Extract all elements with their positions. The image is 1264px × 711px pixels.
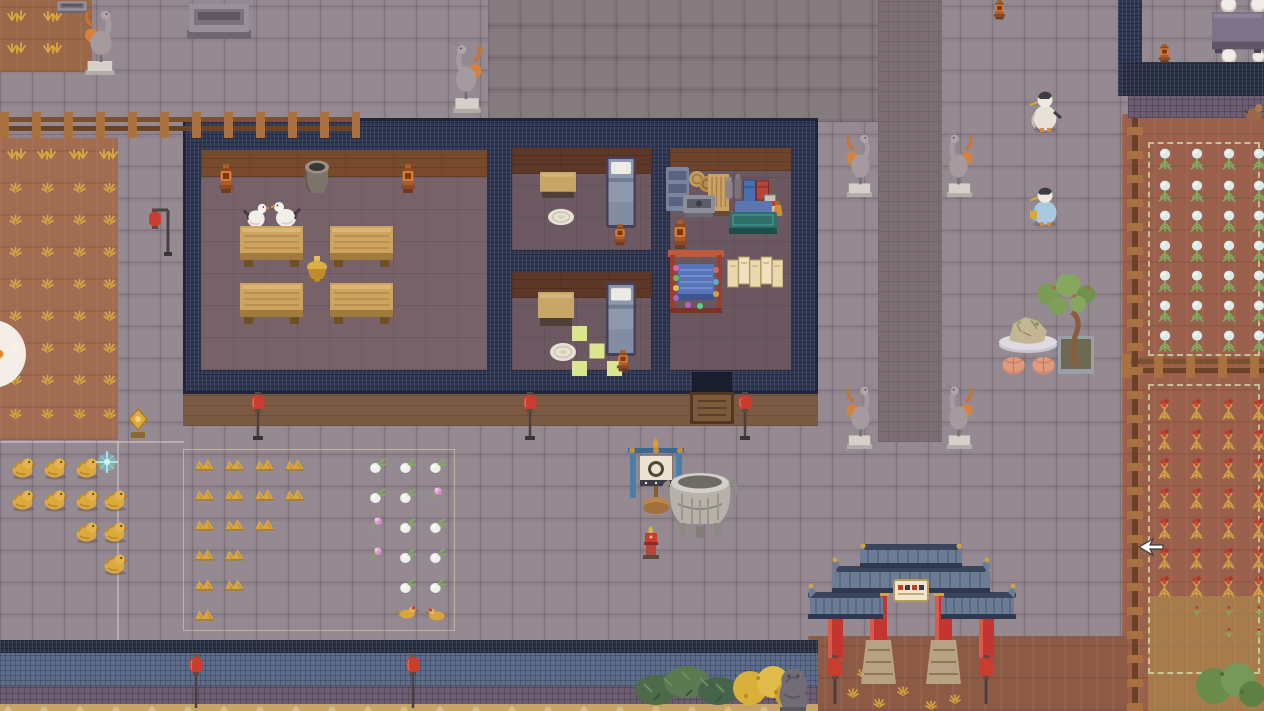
drying-gold-leaves[interactable]	[252, 516, 277, 533]
red-crop-seedling[interactable]	[1252, 624, 1264, 638]
red-crop-seedling[interactable]	[1190, 602, 1204, 616]
red-top-crop[interactable]	[1220, 455, 1237, 479]
red-top-crop[interactable]	[1220, 396, 1237, 420]
brown-bird[interactable]	[1245, 101, 1264, 123]
white-flower-crop[interactable]	[1156, 328, 1174, 352]
left-farm-wheat[interactable]	[102, 306, 117, 321]
red-top-crop[interactable]	[1188, 426, 1205, 450]
crane-statue	[82, 6, 120, 76]
white-flower-crop[interactable]	[1220, 298, 1238, 322]
drying-turnip[interactable]	[368, 456, 387, 474]
red-top-crop[interactable]	[1250, 545, 1264, 569]
left-farm-wheat[interactable]	[102, 404, 117, 419]
white-flower-crop[interactable]	[1188, 298, 1206, 322]
drying-turnip[interactable]	[398, 516, 417, 534]
drying-gold-leaves[interactable]	[222, 486, 247, 503]
left-farm-wheat[interactable]	[40, 338, 55, 353]
weaving-loom[interactable]	[668, 250, 724, 314]
left-farm-wheat[interactable]	[102, 338, 117, 353]
topright-wall-brick	[1128, 96, 1264, 118]
fence-right-vertical	[1127, 118, 1143, 711]
left-farm-wheat[interactable]	[72, 242, 87, 257]
white-flower-crop[interactable]	[1220, 328, 1238, 352]
left-farm-wheat[interactable]	[40, 178, 55, 193]
left-farm-wheat[interactable]	[72, 274, 87, 289]
plaza-section-line-h	[0, 441, 184, 443]
red-lantern-post	[148, 204, 172, 258]
left-farm-wheat[interactable]	[8, 274, 23, 289]
crane-statue	[942, 130, 975, 198]
white-flower-crop[interactable]	[1250, 208, 1264, 232]
white-flower-crop[interactable]	[1220, 146, 1238, 170]
drying-gold-leaves[interactable]	[222, 546, 247, 563]
left-farm-wheat[interactable]	[8, 210, 23, 225]
bronze-cauldron[interactable]	[662, 468, 738, 538]
left-farm-wheat[interactable]	[102, 274, 117, 289]
red-top-crop[interactable]	[1188, 485, 1205, 509]
top-dark-terrace	[488, 0, 878, 122]
nav-arrow-button[interactable]	[0, 318, 28, 390]
left-farm-wheat[interactable]	[72, 178, 87, 193]
lantern-statue	[218, 164, 234, 194]
drying-turnip[interactable]	[398, 456, 417, 474]
red-top-crop[interactable]	[1156, 515, 1173, 539]
hall-wood-strip	[201, 150, 487, 177]
lantern-statue	[613, 224, 627, 246]
left-farm-wheat[interactable]	[72, 306, 87, 321]
pine-tree	[634, 658, 740, 711]
incense-shrine[interactable]	[642, 526, 660, 560]
stone-path-vertical	[878, 0, 942, 442]
drying-turnip[interactable]	[428, 456, 447, 474]
red-top-crop[interactable]	[1250, 515, 1264, 539]
left-farm-wheat[interactable]	[102, 178, 117, 193]
red-top-crop[interactable]	[1250, 426, 1264, 450]
red-top-crop[interactable]	[1156, 485, 1173, 509]
white-flower-crop[interactable]	[1156, 146, 1174, 170]
lantern-statue	[616, 350, 630, 372]
white-flower-crop[interactable]	[1220, 208, 1238, 232]
drying-gold-leaves[interactable]	[222, 576, 247, 593]
drying-gold-leaves[interactable]	[192, 486, 217, 503]
red-top-crop[interactable]	[1220, 485, 1237, 509]
left-farm-wheat[interactable]	[8, 404, 23, 419]
left-farm-wheat[interactable]	[40, 306, 55, 321]
white-flower-crop[interactable]	[1188, 328, 1206, 352]
topleft-gold-bush[interactable]	[6, 38, 28, 54]
drying-gold-leaves[interactable]	[222, 516, 247, 533]
left-farm-wheat[interactable]	[40, 274, 55, 289]
drying-turnip[interactable]	[428, 546, 447, 564]
drying-pink-flower[interactable]	[428, 486, 444, 502]
white-flower-crop[interactable]	[1188, 268, 1206, 292]
white-flower-crop[interactable]	[1156, 268, 1174, 292]
left-farm-gold-bush[interactable]	[36, 144, 58, 160]
left-farm-wheat[interactable]	[72, 404, 87, 419]
white-flower-crop[interactable]	[1156, 178, 1174, 202]
red-top-crop[interactable]	[1188, 396, 1205, 420]
game-viewport	[0, 0, 1264, 711]
red-top-crop[interactable]	[1156, 426, 1173, 450]
left-farm-wheat[interactable]	[102, 210, 117, 225]
white-flower-crop[interactable]	[1188, 208, 1206, 232]
round-rug	[547, 208, 575, 226]
drying-turnip[interactable]	[398, 576, 417, 594]
left-farm-gold-bush[interactable]	[98, 144, 120, 160]
golden-duck-figurine[interactable]	[102, 552, 129, 576]
left-farm-wheat[interactable]	[8, 242, 23, 257]
red-crop-seedling[interactable]	[1222, 602, 1236, 616]
lantern-statue	[672, 220, 688, 250]
red-lantern	[521, 392, 539, 442]
golden-pheasant[interactable]	[426, 606, 448, 622]
door-opening	[692, 372, 732, 394]
drying-turnip[interactable]	[368, 486, 387, 504]
dining-table[interactable]	[240, 226, 303, 268]
red-top-crop[interactable]	[1250, 396, 1264, 420]
bottom-wall-roof-ridge	[0, 640, 818, 653]
white-flower-crop[interactable]	[1250, 298, 1264, 322]
sparkle-effect[interactable]	[93, 448, 121, 476]
red-top-crop[interactable]	[1188, 455, 1205, 479]
drying-turnip[interactable]	[398, 546, 417, 564]
blue-box[interactable]	[743, 179, 756, 203]
red-top-crop[interactable]	[1188, 573, 1205, 597]
drying-turnip[interactable]	[428, 516, 447, 534]
golden-duck-figurine[interactable]	[74, 488, 101, 512]
left-farm-wheat[interactable]	[102, 242, 117, 257]
drying-turnip[interactable]	[428, 576, 447, 594]
left-farm-wheat[interactable]	[8, 178, 23, 193]
red-lantern	[736, 392, 754, 442]
red-lantern	[249, 392, 267, 442]
drying-gold-leaves[interactable]	[222, 456, 247, 473]
teal-chest[interactable]	[729, 212, 777, 234]
npc-crane-villager-blue[interactable]	[1026, 186, 1064, 228]
red-crop-seedling[interactable]	[1222, 624, 1236, 638]
drying-gold-leaves[interactable]	[192, 546, 217, 563]
left-farm-gold-bush[interactable]	[68, 144, 90, 160]
left-farm-wheat[interactable]	[72, 210, 87, 225]
crane-statue	[844, 130, 877, 198]
door-step[interactable]	[690, 392, 734, 424]
fence-topleft	[0, 112, 360, 138]
golden-duck-figurine[interactable]	[102, 488, 129, 512]
red-top-crop[interactable]	[1220, 515, 1237, 539]
npc-crane-villager[interactable]	[1026, 90, 1064, 134]
golden-duck-figurine[interactable]	[10, 456, 37, 480]
red-top-crop[interactable]	[1250, 485, 1264, 509]
white-flower-crop[interactable]	[1250, 178, 1264, 202]
white-flower-crop[interactable]	[1220, 268, 1238, 292]
white-flower-crop[interactable]	[1188, 146, 1206, 170]
white-flower-crop[interactable]	[1250, 328, 1264, 352]
red-top-crop[interactable]	[1156, 455, 1173, 479]
drying-gold-leaves[interactable]	[282, 456, 307, 473]
drying-gold-leaves[interactable]	[192, 576, 217, 593]
left-farm-gold-bush[interactable]	[6, 144, 28, 160]
red-top-crop[interactable]	[1156, 396, 1173, 420]
red-top-crop[interactable]	[1188, 545, 1205, 569]
low-table[interactable]	[540, 172, 576, 204]
lantern-statue	[400, 164, 416, 194]
left-farm-wheat[interactable]	[40, 404, 55, 419]
left-farm-wheat[interactable]	[40, 242, 55, 257]
lantern-statue	[1158, 44, 1171, 63]
topright-table[interactable]	[1212, 12, 1264, 54]
bed[interactable]	[606, 156, 636, 228]
left-farm-wheat[interactable]	[72, 338, 87, 353]
drying-pink-flower[interactable]	[368, 546, 384, 562]
red-top-crop[interactable]	[1220, 426, 1237, 450]
drying-gold-leaves[interactable]	[282, 486, 307, 503]
red-top-crop[interactable]	[1188, 515, 1205, 539]
topleft-gold-bush[interactable]	[6, 6, 28, 22]
round-rug	[549, 342, 577, 362]
wall-lantern	[404, 654, 422, 710]
floor-cushion[interactable]	[1032, 356, 1055, 375]
pelican-statue	[448, 40, 484, 114]
red-top-crop[interactable]	[1250, 573, 1264, 597]
gold-incense-burner[interactable]	[304, 256, 330, 286]
white-flower-crop[interactable]	[1156, 208, 1174, 232]
work-machine[interactable]	[683, 192, 715, 218]
floor-cushion[interactable]	[1002, 356, 1025, 375]
topleft-gold-bush[interactable]	[42, 38, 64, 54]
red-crop-seedling[interactable]	[1252, 602, 1264, 616]
red-top-crop[interactable]	[1220, 545, 1237, 569]
drying-gold-leaves[interactable]	[252, 456, 277, 473]
red-top-crop[interactable]	[1220, 573, 1237, 597]
white-flower-crop[interactable]	[1220, 238, 1238, 262]
white-flower-crop[interactable]	[1250, 268, 1264, 292]
vases[interactable]	[725, 173, 742, 201]
dining-table[interactable]	[240, 283, 303, 325]
drying-gold-leaves[interactable]	[252, 486, 277, 503]
golden-duck-figurine[interactable]	[42, 488, 69, 512]
drying-turnip[interactable]	[398, 486, 417, 504]
left-farm-wheat[interactable]	[40, 370, 55, 385]
drying-gold-leaves[interactable]	[192, 456, 217, 473]
left-farm-wheat[interactable]	[72, 370, 87, 385]
stone-altar	[186, 0, 252, 42]
drying-pink-flower[interactable]	[368, 516, 384, 532]
fence-right-mid	[1122, 354, 1264, 378]
corner-tree	[1190, 658, 1264, 711]
white-flower-crop[interactable]	[1220, 178, 1238, 202]
paifang-gate	[808, 540, 1016, 711]
ceramic-pot[interactable]	[303, 158, 331, 196]
low-table[interactable]	[538, 292, 574, 334]
left-farm-wheat[interactable]	[40, 210, 55, 225]
bed[interactable]	[606, 282, 636, 356]
topright-wall-roofband	[1122, 62, 1264, 96]
white-flower-crop[interactable]	[1250, 146, 1264, 170]
white-flower-crop[interactable]	[1188, 178, 1206, 202]
drying-gold-leaves[interactable]	[192, 516, 217, 533]
drying-gold-leaves[interactable]	[192, 606, 217, 623]
golden-duck-figurine[interactable]	[42, 456, 69, 480]
dining-table[interactable]	[330, 283, 393, 325]
white-flower-crop[interactable]	[1156, 238, 1174, 262]
crane-statue	[942, 382, 975, 450]
left-farm-wheat[interactable]	[102, 370, 117, 385]
golden-duck-figurine[interactable]	[10, 488, 37, 512]
crane-statue	[844, 382, 877, 450]
mouse-cursor	[1138, 538, 1164, 556]
red-top-crop[interactable]	[1250, 455, 1264, 479]
golden-pheasant[interactable]	[396, 604, 418, 620]
golden-duck-figurine[interactable]	[74, 520, 101, 544]
white-flower-crop[interactable]	[1156, 298, 1174, 322]
stone-lion-statue	[774, 662, 810, 711]
gold-ornament[interactable]	[125, 408, 151, 440]
white-flower-crop[interactable]	[1250, 238, 1264, 262]
lantern-statue	[993, 0, 1006, 20]
wall-lantern	[187, 654, 205, 710]
white-flower-crop[interactable]	[1188, 238, 1206, 262]
folding-screen[interactable]	[727, 256, 783, 292]
golden-duck-figurine[interactable]	[102, 520, 129, 544]
red-top-crop[interactable]	[1156, 573, 1173, 597]
dining-table[interactable]	[330, 226, 393, 268]
